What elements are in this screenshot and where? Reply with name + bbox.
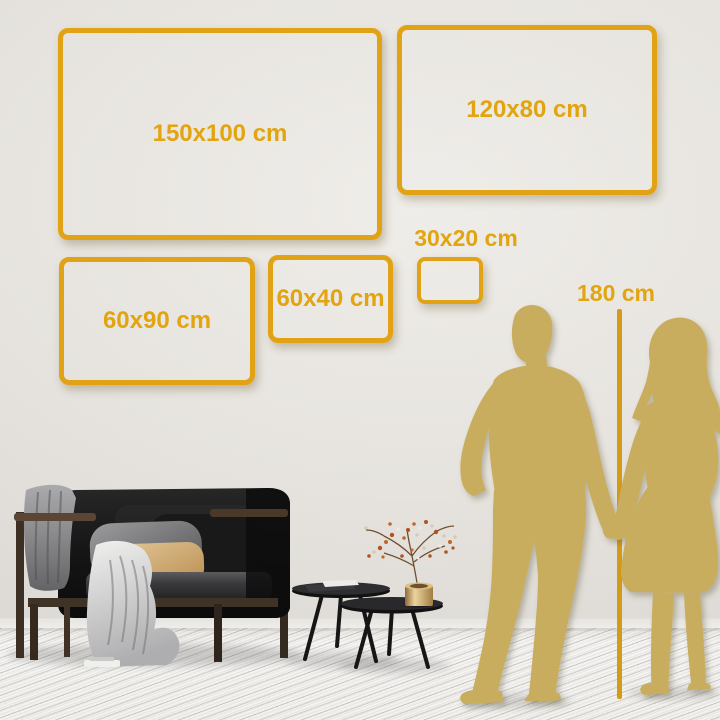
silhouettes (460, 305, 720, 704)
floor-book (84, 660, 120, 667)
woman-silhouette (610, 318, 720, 695)
man-silhouette (460, 305, 624, 704)
sofa (14, 485, 290, 667)
sofa-left-post (16, 512, 24, 658)
sofa-leg (64, 607, 70, 657)
sofa-leg (214, 604, 222, 662)
vase-opening (410, 584, 428, 588)
room-scene (0, 0, 720, 720)
branches (366, 526, 454, 589)
blossoms (364, 520, 456, 560)
sofa-leg (30, 604, 38, 660)
sofa-right-arm-rail (210, 509, 288, 517)
floor-book (90, 657, 114, 661)
sofa-left-arm-rail (14, 513, 96, 521)
size-comparison-scene: 150x100 cm 120x80 cm 60x90 cm 60x40 cm 3… (0, 0, 720, 720)
